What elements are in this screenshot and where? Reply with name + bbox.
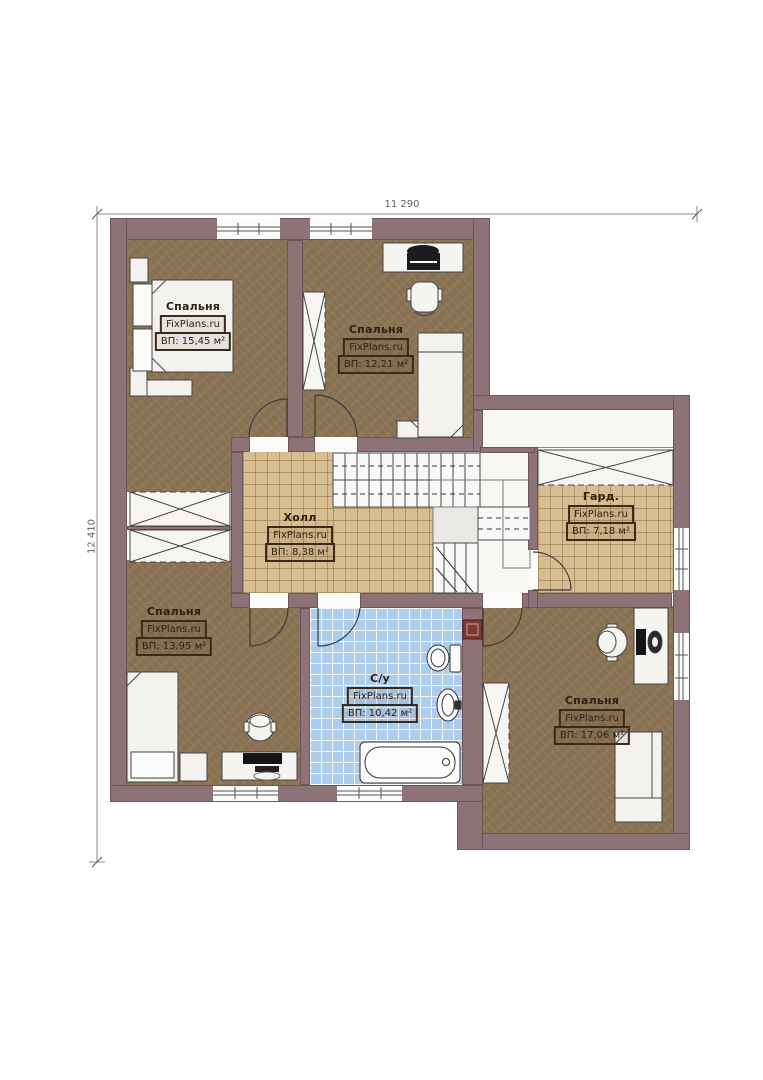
bedroom-top-left-floor-strip (127, 437, 231, 492)
hall-floor-b (333, 505, 433, 593)
wall-hall-top-1 (231, 437, 250, 452)
wall-mid-horizontal (360, 593, 483, 608)
wall-wardrobe-left-a (528, 447, 538, 550)
room-name: Спальня (147, 605, 201, 618)
room-label-bedroom-top-left: Спальня FixPlans.ru ВП: 15,45 м² (155, 300, 231, 351)
wall-hall-top-2 (288, 437, 315, 452)
closet-left-top (130, 492, 230, 526)
wall-thin-band (480, 447, 535, 453)
room-area: ВП: 10,42 м² (342, 704, 418, 723)
dimension-width: 11 290 (372, 199, 432, 210)
room-area: ВП: 7,18 м² (566, 522, 636, 541)
window-right-1 (674, 528, 689, 590)
room-name: Спальня (565, 694, 619, 707)
wall-exterior-right-main (473, 218, 490, 410)
wall-b4-top (522, 593, 672, 608)
window-bottom-1 (213, 786, 278, 801)
wall-hall-top-3 (357, 437, 480, 452)
door-opening-bedroom4 (483, 593, 522, 608)
door-opening-bedroom3 (250, 593, 288, 608)
corridor-floor (473, 452, 528, 593)
dimension-height: 12 410 (87, 507, 98, 567)
wall-wing-right (673, 395, 690, 850)
floor-plan: Спальня FixPlans.ru ВП: 15,45 м² Спальня… (0, 0, 763, 1080)
window-right-2 (674, 633, 689, 700)
room-label-bedroom-top-middle: Спальня FixPlans.ru ВП: 12,21 м² (338, 323, 414, 374)
room-label-bedroom-bottom-right: Спальня FixPlans.ru ВП: 17,06 м² (554, 694, 630, 745)
wall-bathroom-right (462, 608, 483, 785)
wall-wing-bottom (457, 833, 690, 850)
bedroom-bottom-left-floor (127, 560, 231, 785)
window-bottom-2 (337, 786, 402, 801)
room-label-hall: Холл FixPlans.ru ВП: 8,38 м² (265, 511, 335, 562)
room-area: ВП: 15,45 м² (155, 332, 231, 351)
wall-hall-left (231, 452, 243, 593)
room-name: Спальня (166, 300, 220, 313)
room-area: ВП: 12,21 м² (338, 355, 414, 374)
room-area: ВП: 17,06 м² (554, 726, 630, 745)
window-top-1 (217, 218, 280, 239)
wall-wing-top (473, 395, 690, 410)
void-strip-floor (483, 410, 673, 448)
window-top-2 (310, 218, 372, 239)
door-opening-bedroom1 (250, 437, 288, 452)
closet-left-bottom (130, 530, 230, 562)
wall-b3-top-1 (231, 593, 250, 608)
wall-exterior-bottom (110, 785, 483, 802)
room-label-wardrobe: Гард. FixPlans.ru ВП: 7,18 м² (566, 490, 636, 541)
door-opening-wardrobe (528, 550, 538, 590)
closet-wardrobe (538, 450, 673, 485)
wall-b2-right-ext (473, 410, 483, 452)
room-label-bedroom-bottom-left: Спальня FixPlans.ru ВП: 13,95 м² (136, 605, 212, 656)
room-name: Холл (284, 511, 317, 524)
wall-partition-b1-b2 (287, 240, 303, 437)
wall-wardrobe-left-b (528, 590, 538, 608)
wall-exterior-left (110, 218, 127, 802)
wall-closet-partition (127, 526, 231, 530)
door-opening-bedroom2 (315, 437, 357, 452)
bedroom-bottom-left-floor-b (231, 608, 300, 785)
room-name: Гард. (583, 490, 619, 503)
room-area: ВП: 8,38 м² (265, 543, 335, 562)
room-area: ВП: 13,95 м² (136, 637, 212, 656)
room-label-bathroom: С/у FixPlans.ru ВП: 10,42 м² (342, 672, 418, 723)
wall-exterior-top (110, 218, 490, 240)
door-opening-bathroom (318, 593, 360, 608)
room-name: Спальня (349, 323, 403, 336)
wall-b3-top-2 (288, 593, 318, 608)
room-name: С/у (370, 672, 390, 685)
wall-bathroom-left (300, 608, 310, 785)
